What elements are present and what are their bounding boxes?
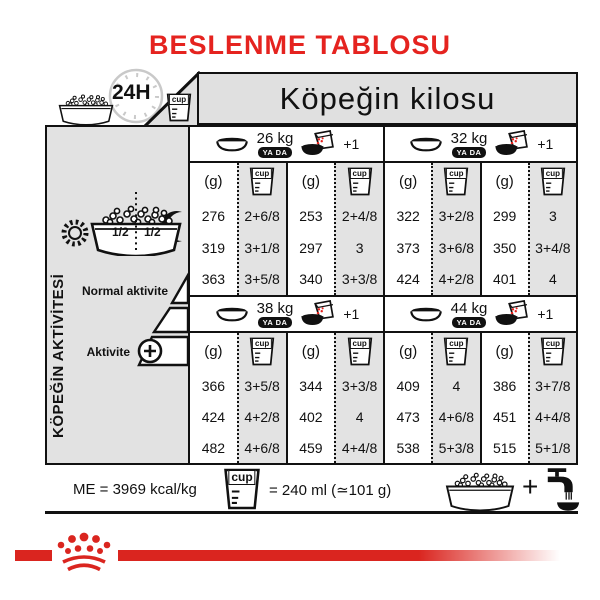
cup-icon: cup xyxy=(347,166,373,197)
bag-and-bowl-icon xyxy=(300,130,336,158)
grams-value: 386 xyxy=(482,370,528,401)
cup-icon: cup xyxy=(249,166,275,197)
grams-unit: (g) xyxy=(190,333,237,370)
grams-value: 276 xyxy=(190,200,237,232)
cups-column-alt: cup 3 3+4/8 4 xyxy=(528,163,576,295)
or-badge: YA DA xyxy=(258,147,293,158)
cup-value: 3+1/8 xyxy=(239,232,286,264)
grams-value: 297 xyxy=(288,232,335,264)
cups-column: cup 3+2/8 3+6/8 4+2/8 xyxy=(431,163,479,295)
or-badge: YA DA xyxy=(452,147,487,158)
grams-unit: (g) xyxy=(482,333,528,370)
cup-value: 5+1/8 xyxy=(530,432,576,463)
cup-value: 4+4/8 xyxy=(530,401,576,432)
weight-label-group: 38 kg YA DA xyxy=(257,301,294,328)
food-bowl-icon xyxy=(56,88,116,128)
weight-label-group: 32 kg YA DA xyxy=(451,131,488,158)
cup-value: 4 xyxy=(433,370,479,401)
water-tap-icon xyxy=(533,466,581,513)
cup-icon: cup xyxy=(540,336,566,367)
weight-block: 38 kg YA DA +1 (g) 366 424 482 cup 3 xyxy=(190,295,383,463)
grams-value: 363 xyxy=(190,263,237,295)
cup-value: 3+3/8 xyxy=(336,263,383,295)
grams-value: 344 xyxy=(288,370,335,401)
cup-value: 5+3/8 xyxy=(433,432,479,463)
weight-block-header: 38 kg YA DA +1 xyxy=(190,297,383,331)
cup-unit: cup xyxy=(530,333,576,370)
cups-column: cup 3+5/8 4+2/8 4+6/8 xyxy=(237,333,286,463)
grams-value: 319 xyxy=(190,232,237,264)
bowl-icon xyxy=(214,136,250,153)
grams-unit: (g) xyxy=(385,163,431,200)
weight-block-header: 26 kg YA DA +1 xyxy=(190,127,383,161)
cups-column-alt: cup 3+7/8 4+4/8 5+1/8 xyxy=(528,333,576,463)
cup-icon: cup xyxy=(347,336,373,367)
half-portion-right: 1/2 xyxy=(144,225,161,239)
grams-column: (g) 322 373 424 xyxy=(385,163,431,295)
plus-one-label: +1 xyxy=(537,136,553,152)
food-bowl-icon xyxy=(438,467,522,512)
cup-word: cup xyxy=(252,168,272,179)
grams-column: (g) 276 319 363 xyxy=(190,163,237,295)
cup-value: 4 xyxy=(530,263,576,295)
grams-value: 340 xyxy=(288,263,335,295)
weight-block: 26 kg YA DA +1 (g) 276 319 363 cup 2 xyxy=(190,127,383,295)
cups-column-alt: cup 2+4/8 3 3+3/8 xyxy=(334,163,383,295)
weight-label: 32 kg xyxy=(451,131,488,147)
grams-value: 401 xyxy=(482,263,528,295)
cup-icon: cup xyxy=(249,336,275,367)
bag-and-bowl-icon xyxy=(494,300,530,328)
weight-label: 44 kg xyxy=(451,301,488,317)
feeding-table-panel: BESLENME TABLOSU 24H cup Köpeğin kilosu … xyxy=(0,0,600,600)
grams-unit: (g) xyxy=(288,163,335,200)
cups-column: cup 4 4+6/8 5+3/8 xyxy=(431,333,479,463)
grams-value: 459 xyxy=(288,432,335,463)
red-bar xyxy=(118,550,560,561)
high-activity-label: Aktivite xyxy=(64,345,130,359)
cup-value: 3 xyxy=(336,232,383,264)
bowl-icon xyxy=(214,306,250,323)
cup-value: 2+6/8 xyxy=(239,200,286,232)
footer-strip: ME = 3969 kcal/kg cup = 240 ml (≃101 g) … xyxy=(45,465,578,514)
cup-word: cup xyxy=(543,168,563,179)
grams-value: 473 xyxy=(385,401,431,432)
cup-unit: cup xyxy=(239,333,286,370)
cup-value: 4+6/8 xyxy=(239,432,286,463)
weight-title: Köpeğin kilosu xyxy=(280,81,496,117)
cup-unit: cup xyxy=(239,163,286,200)
cup-word: cup xyxy=(543,338,563,349)
cup-word: cup xyxy=(169,94,189,105)
grams-value: 451 xyxy=(482,401,528,432)
energy-label: ME = 3969 kcal/kg xyxy=(73,481,197,498)
grams-value: 253 xyxy=(288,200,335,232)
cup-icon: cup xyxy=(166,92,192,123)
cup-value: 3 xyxy=(530,200,576,232)
grams-value: 322 xyxy=(385,200,431,232)
grams-unit: (g) xyxy=(288,333,335,370)
grams-value: 409 xyxy=(385,370,431,401)
grams-value: 538 xyxy=(385,432,431,463)
cup-value: 4 xyxy=(336,401,383,432)
cup-icon: cup xyxy=(443,336,469,367)
cup-value: 3+3/8 xyxy=(336,370,383,401)
weight-label-group: 26 kg YA DA xyxy=(257,131,294,158)
bowl-icon xyxy=(408,306,444,323)
grams-column: (g) 409 473 538 xyxy=(385,333,431,463)
plus-one-label: +1 xyxy=(537,306,553,322)
weight-block-header: 44 kg YA DA +1 xyxy=(385,297,576,331)
weight-block-table: (g) 276 319 363 cup 2+6/8 3+1/8 3+5/8 (g… xyxy=(190,161,383,295)
grams-value: 482 xyxy=(190,432,237,463)
weight-title-bar: Köpeğin kilosu xyxy=(197,72,578,125)
cup-value: 3+6/8 xyxy=(433,232,479,264)
weight-block-header: 32 kg YA DA +1 xyxy=(385,127,576,161)
cup-value: 4+2/8 xyxy=(239,401,286,432)
cup-value: 4+6/8 xyxy=(433,401,479,432)
weight-label: 26 kg xyxy=(257,131,294,147)
cup-value: 3+7/8 xyxy=(530,370,576,401)
cup-unit: cup xyxy=(336,163,383,200)
weight-block-table: (g) 409 473 538 cup 4 4+6/8 5+3/8 (g) 38… xyxy=(385,331,576,463)
cup-value: 4+4/8 xyxy=(336,432,383,463)
weights-grid: 26 kg YA DA +1 (g) 276 319 363 cup 2 xyxy=(188,125,578,465)
weight-block: 44 kg YA DA +1 (g) 409 473 538 cup 4 xyxy=(383,295,576,463)
cup-value: 3+2/8 xyxy=(433,200,479,232)
grams-column-alt: (g) 253 297 340 xyxy=(286,163,335,295)
weight-label: 38 kg xyxy=(257,301,294,317)
activity-level-icon xyxy=(134,271,190,367)
cup-word: cup xyxy=(228,470,255,485)
bag-and-bowl-icon xyxy=(494,130,530,158)
grams-value: 515 xyxy=(482,432,528,463)
cups-column: cup 2+6/8 3+1/8 3+5/8 xyxy=(237,163,286,295)
cup-value: 3+4/8 xyxy=(530,232,576,264)
weight-block-table: (g) 366 424 482 cup 3+5/8 4+2/8 4+6/8 (g… xyxy=(190,331,383,463)
grams-value: 424 xyxy=(190,401,237,432)
grams-value: 373 xyxy=(385,232,431,264)
half-portion-left: 1/2 xyxy=(112,225,129,239)
cup-value: 4+2/8 xyxy=(433,263,479,295)
cup-icon: cup xyxy=(223,467,261,511)
cup-unit: cup xyxy=(433,333,479,370)
cup-word: cup xyxy=(446,338,466,349)
cup-icon: cup xyxy=(443,166,469,197)
weight-block: 32 kg YA DA +1 (g) 322 373 424 cup 3 xyxy=(383,127,576,295)
bag-and-bowl-icon xyxy=(300,300,336,328)
brand-crown-logo xyxy=(50,530,118,576)
cup-value: 3+5/8 xyxy=(239,370,286,401)
cup-word: cup xyxy=(252,338,272,349)
grams-column-alt: (g) 386 451 515 xyxy=(480,333,528,463)
grams-value: 350 xyxy=(482,232,528,264)
weight-label-group: 44 kg YA DA xyxy=(451,301,488,328)
grams-unit: (g) xyxy=(385,333,431,370)
cups-column-alt: cup 3+3/8 4 4+4/8 xyxy=(334,333,383,463)
cup-word: cup xyxy=(350,338,370,349)
grams-column: (g) 366 424 482 xyxy=(190,333,237,463)
plus-one-label: +1 xyxy=(343,136,359,152)
bowl-icon xyxy=(408,136,444,153)
or-badge: YA DA xyxy=(452,317,487,328)
grams-unit: (g) xyxy=(482,163,528,200)
cup-equivalent-label: = 240 ml (≃101 g) xyxy=(269,481,391,499)
sidebar-vertical-label: KÖPEĞİN AKTİVİTESİ xyxy=(50,250,67,438)
page-title: BESLENME TABLOSU xyxy=(0,30,600,61)
grams-unit: (g) xyxy=(190,163,237,200)
or-badge: YA DA xyxy=(258,317,293,328)
cup-value: 3+5/8 xyxy=(239,263,286,295)
grams-value: 366 xyxy=(190,370,237,401)
grams-column-alt: (g) 344 402 459 xyxy=(286,333,335,463)
weight-block-table: (g) 322 373 424 cup 3+2/8 3+6/8 4+2/8 (g… xyxy=(385,161,576,295)
cup-word: cup xyxy=(350,168,370,179)
cup-icon: cup xyxy=(540,166,566,197)
red-bar-left xyxy=(15,550,52,561)
grams-column-alt: (g) 299 350 401 xyxy=(480,163,528,295)
grams-value: 402 xyxy=(288,401,335,432)
grams-value: 299 xyxy=(482,200,528,232)
cup-unit: cup xyxy=(336,333,383,370)
plus-one-label: +1 xyxy=(343,306,359,322)
half-half-bowl: 1/2 1/2 xyxy=(86,192,186,256)
cup-value: 2+4/8 xyxy=(336,200,383,232)
cup-unit: cup xyxy=(530,163,576,200)
cup-unit: cup xyxy=(433,163,479,200)
cup-word: cup xyxy=(446,168,466,179)
grams-value: 424 xyxy=(385,263,431,295)
